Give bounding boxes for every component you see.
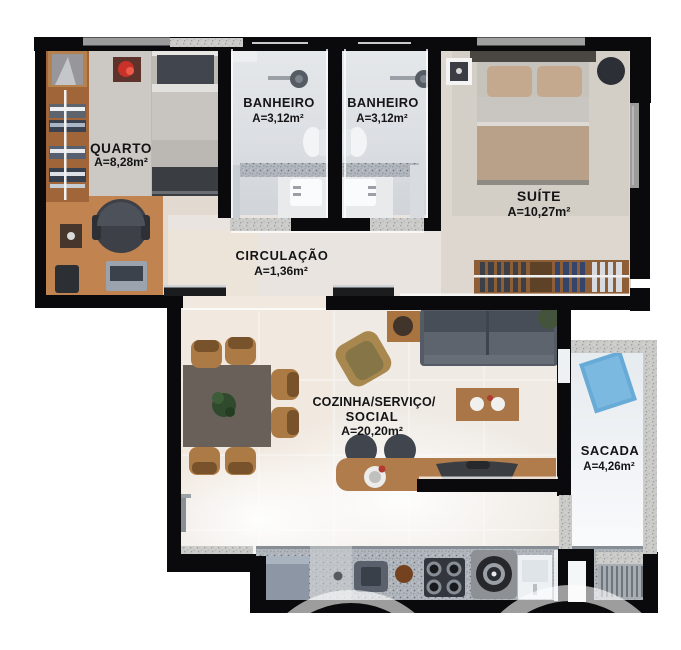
svg-text:BANHEIRO: BANHEIRO bbox=[347, 95, 418, 110]
svg-text:BANHEIRO: BANHEIRO bbox=[243, 95, 314, 110]
svg-text:A=20,20m²: A=20,20m² bbox=[341, 424, 403, 438]
svg-text:QUARTO: QUARTO bbox=[90, 141, 152, 156]
svg-text:A=3,12m²: A=3,12m² bbox=[252, 113, 304, 125]
svg-text:CIRCULAÇÃO: CIRCULAÇÃO bbox=[235, 248, 328, 263]
svg-text:A=4,26m²: A=4,26m² bbox=[583, 461, 635, 473]
svg-text:COZINHA/SERVIÇO/: COZINHA/SERVIÇO/ bbox=[312, 395, 435, 409]
svg-text:A=3,12m²: A=3,12m² bbox=[356, 113, 408, 125]
svg-text:A=10,27m²: A=10,27m² bbox=[508, 205, 571, 219]
svg-text:A=1,36m²: A=1,36m² bbox=[254, 264, 308, 278]
svg-text:A=8,28m²: A=8,28m² bbox=[94, 155, 148, 169]
svg-text:SACADA: SACADA bbox=[581, 443, 640, 458]
svg-text:SOCIAL: SOCIAL bbox=[346, 409, 399, 424]
svg-text:SUÍTE: SUÍTE bbox=[517, 188, 561, 204]
